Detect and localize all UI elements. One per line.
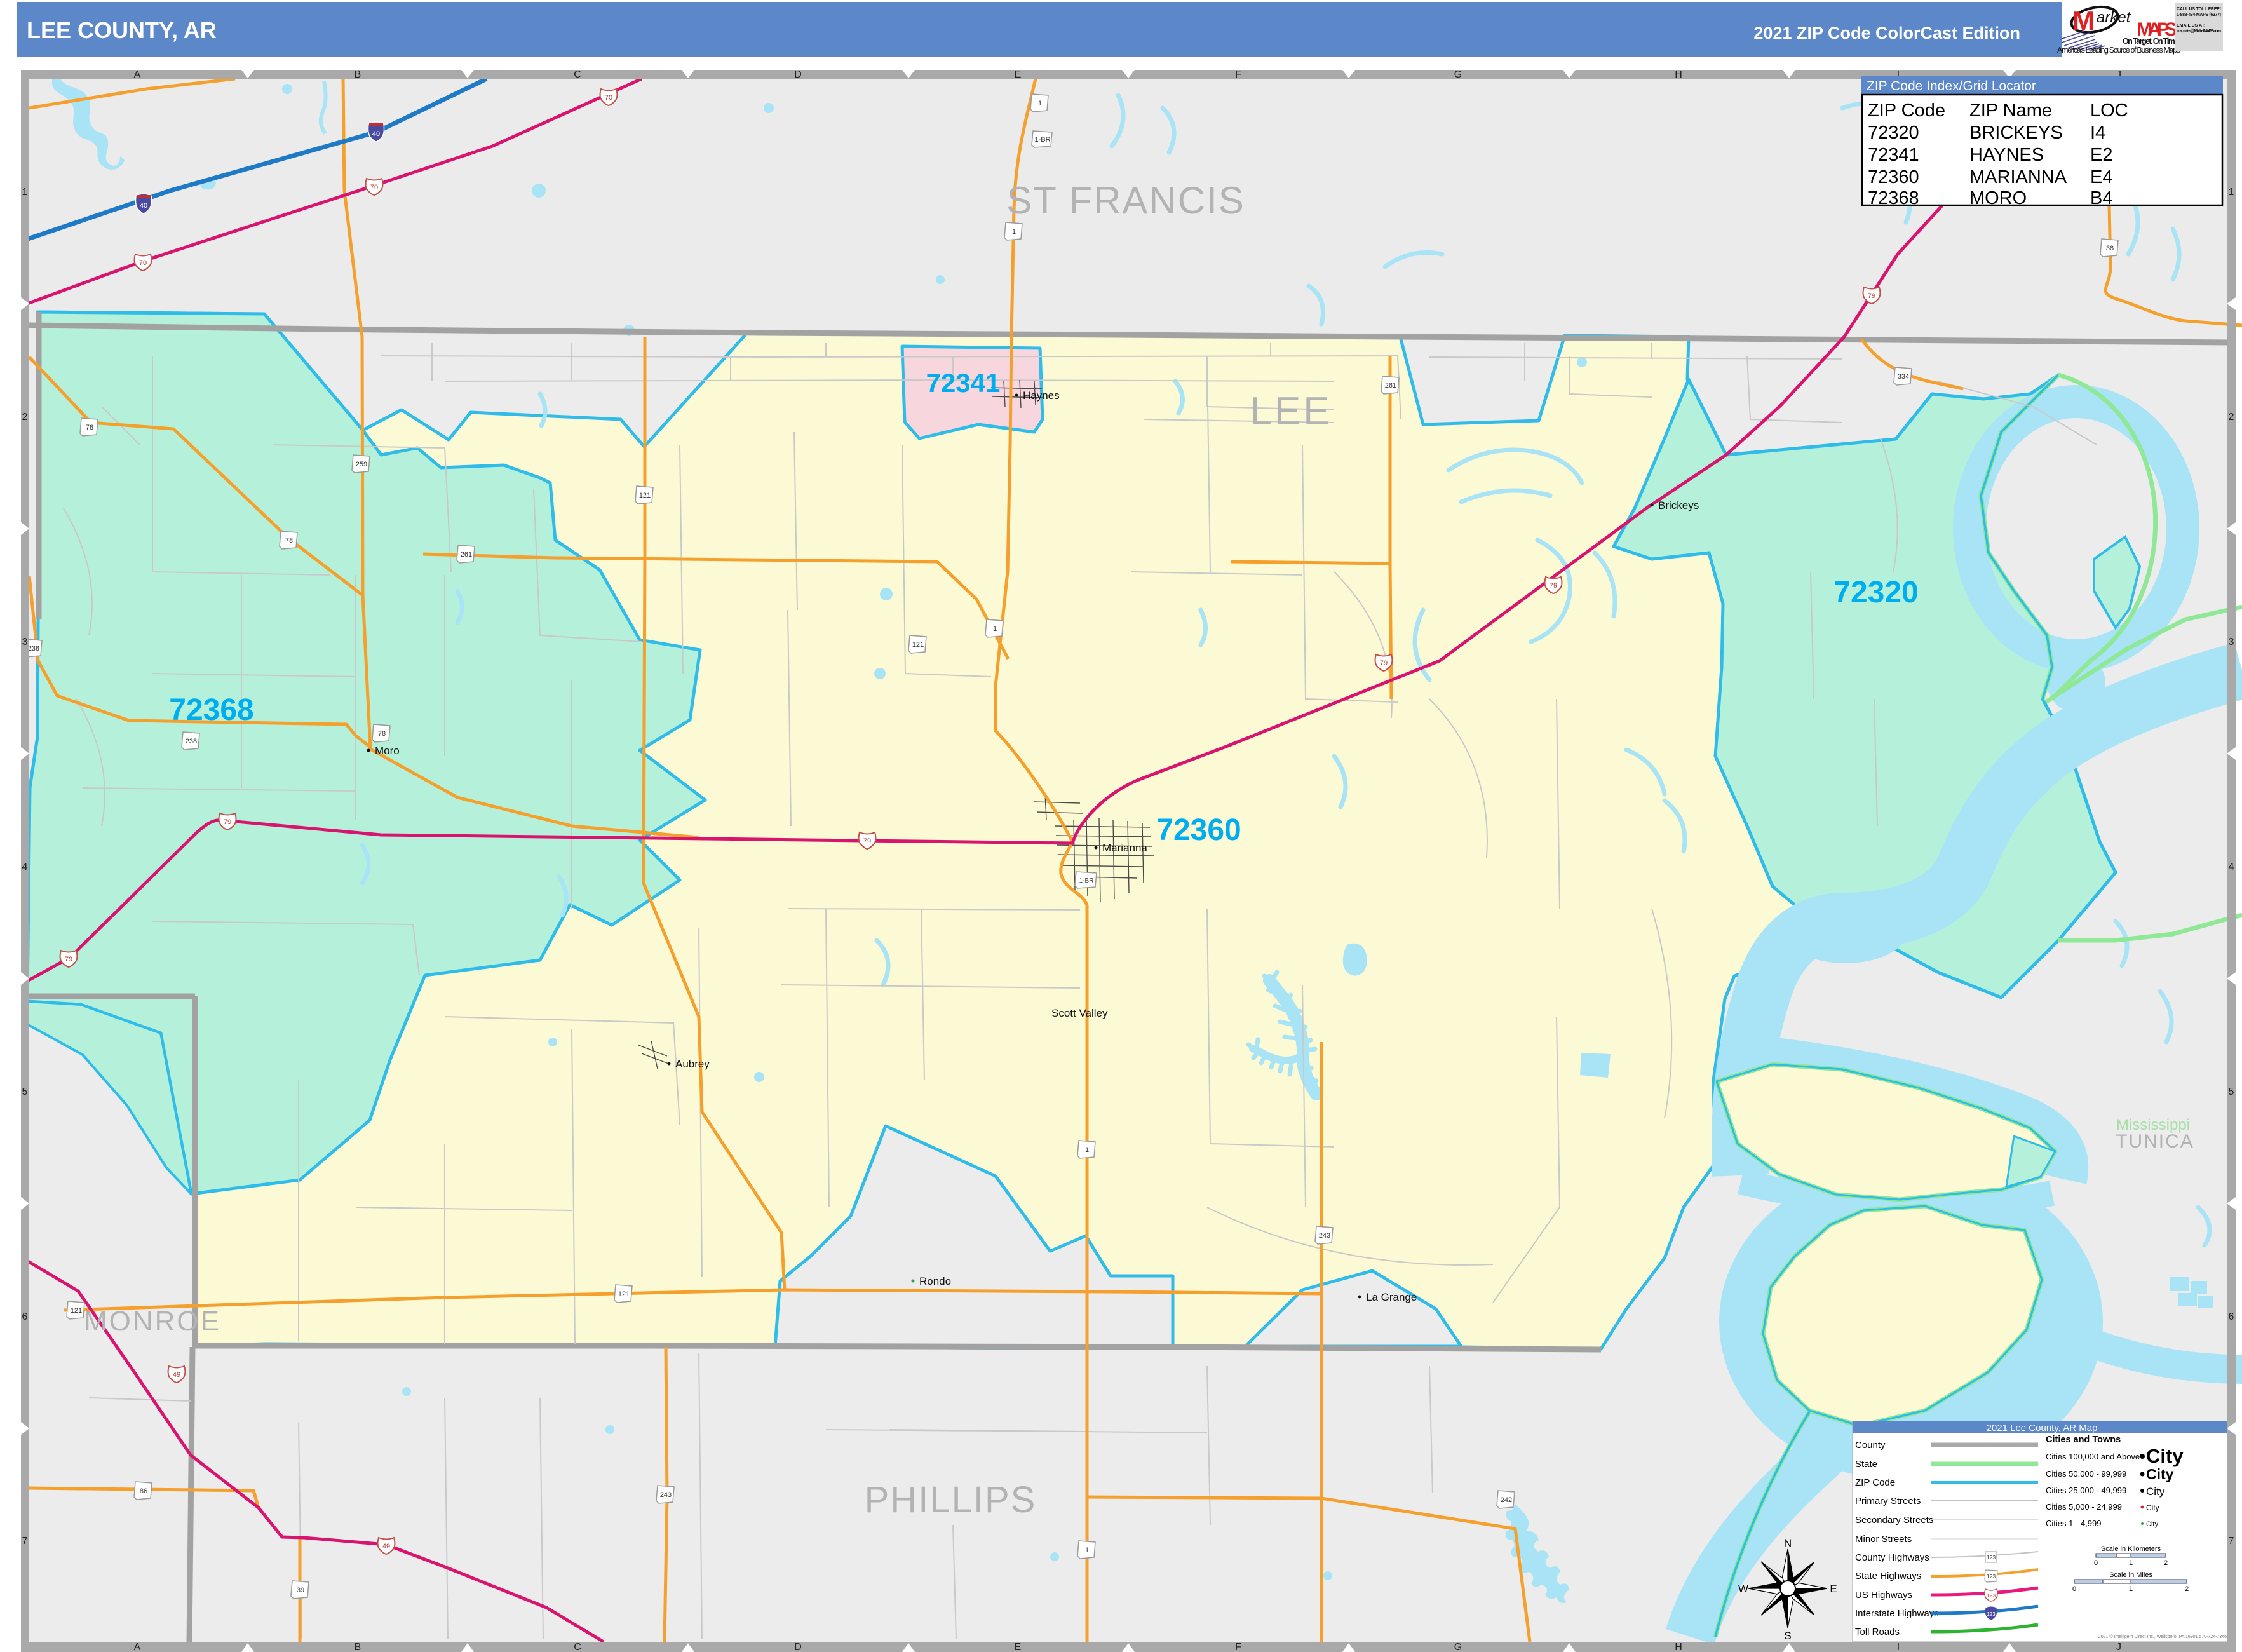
svg-text:259: 259 (356, 461, 367, 468)
svg-text:3: 3 (2229, 637, 2234, 647)
svg-text:4: 4 (2229, 862, 2234, 872)
svg-text:72320: 72320 (1868, 123, 1919, 143)
svg-text:B: B (355, 1642, 361, 1652)
svg-text:ZIP Code: ZIP Code (1868, 100, 1945, 121)
svg-text:LOC: LOC (2090, 100, 2128, 121)
svg-text:1: 1 (1012, 228, 1016, 236)
svg-text:Interstate Highways: Interstate Highways (1855, 1608, 1939, 1619)
svg-text:40: 40 (372, 130, 380, 138)
svg-text:78: 78 (378, 730, 386, 738)
svg-text:334: 334 (1898, 373, 1909, 381)
svg-text:72360: 72360 (1156, 813, 1241, 847)
svg-text:N: N (1784, 1537, 1792, 1549)
svg-text:121: 121 (71, 1307, 82, 1315)
svg-text:Cities 100,000 and Above: Cities 100,000 and Above (2046, 1452, 2140, 1461)
svg-text:A: A (134, 69, 141, 80)
svg-text:Scott Valley: Scott Valley (1051, 1007, 1108, 1019)
svg-text:38: 38 (2106, 245, 2114, 252)
svg-text:86: 86 (140, 1487, 147, 1495)
svg-text:243: 243 (660, 1491, 672, 1499)
svg-text:PHILLIPS: PHILLIPS (865, 1479, 1037, 1520)
svg-text:CALL US TOLL FREE!: CALL US TOLL FREE! (2177, 7, 2221, 11)
svg-text:78: 78 (86, 424, 93, 431)
svg-text:La Grange: La Grange (1366, 1291, 1417, 1303)
svg-text:70: 70 (139, 259, 147, 267)
svg-text:MORO: MORO (1969, 188, 2027, 208)
svg-text:242: 242 (1501, 1496, 1512, 1504)
svg-text:Moro: Moro (375, 745, 400, 757)
svg-text:39: 39 (297, 1587, 304, 1594)
svg-text:E: E (1015, 69, 1022, 80)
svg-text:Brickeys: Brickeys (1658, 499, 1699, 511)
svg-text:LEE: LEE (1250, 389, 1332, 433)
svg-text:B4: B4 (2090, 188, 2112, 208)
svg-text:123: 123 (1987, 1592, 1996, 1599)
svg-text:Rondo: Rondo (919, 1275, 951, 1287)
svg-text:County Highways: County Highways (1855, 1552, 1929, 1563)
svg-text:4: 4 (22, 862, 28, 872)
svg-text:72341: 72341 (1868, 145, 1919, 165)
svg-text:72341: 72341 (926, 368, 1001, 398)
svg-text:1: 1 (2129, 1585, 2133, 1593)
svg-text:Minor Streets: Minor Streets (1855, 1534, 1912, 1545)
svg-text:S: S (1784, 1630, 1791, 1642)
svg-text:C: C (574, 69, 581, 80)
svg-text:State Highways: State Highways (1855, 1571, 1921, 1581)
svg-text:121: 121 (912, 641, 924, 649)
svg-text:0: 0 (2094, 1559, 2098, 1567)
svg-text:6: 6 (2229, 1311, 2234, 1322)
svg-text:City: City (2146, 1486, 2165, 1498)
svg-text:C: C (574, 1642, 581, 1652)
svg-text:2021 ZIP Code ColorCast Editio: 2021 ZIP Code ColorCast Edition (1753, 24, 2020, 43)
svg-text:70: 70 (605, 94, 612, 102)
svg-text:238: 238 (28, 645, 39, 653)
svg-text:79: 79 (65, 956, 72, 963)
svg-text:6: 6 (22, 1311, 28, 1322)
svg-text:1: 1 (2229, 187, 2234, 198)
svg-text:1: 1 (22, 187, 28, 198)
svg-text:America's Leading Source of B: America's Leading Source of Business Map… (2057, 46, 2180, 55)
svg-text:I: I (1897, 1642, 1900, 1652)
svg-text:1: 1 (1038, 100, 1042, 107)
svg-text:Primary Streets: Primary Streets (1855, 1496, 1921, 1506)
svg-text:1: 1 (2129, 1559, 2133, 1567)
svg-text:W: W (1738, 1583, 1748, 1595)
svg-text:TUNICA: TUNICA (2116, 1131, 2194, 1152)
svg-text:MONROE: MONROE (84, 1306, 221, 1337)
svg-text:City: City (2146, 1466, 2174, 1482)
svg-text:72320: 72320 (1833, 576, 1918, 609)
svg-text:123: 123 (1987, 1611, 1996, 1617)
svg-text:79: 79 (1868, 292, 1875, 300)
svg-text:1: 1 (1085, 1146, 1089, 1154)
svg-text:72360: 72360 (1868, 167, 1919, 187)
svg-text:72368: 72368 (169, 693, 253, 727)
svg-text:123: 123 (1987, 1573, 1996, 1580)
svg-text:H: H (1675, 69, 1682, 80)
svg-text:G: G (1454, 69, 1462, 80)
svg-text:mapsales@MarketMAPS.com: mapsales@MarketMAPS.com (2177, 29, 2221, 34)
svg-text:Cities 25,000 - 49,999: Cities 25,000 - 49,999 (2046, 1486, 2126, 1495)
svg-text:Haynes: Haynes (1023, 389, 1060, 402)
svg-text:7: 7 (2229, 1536, 2234, 1547)
svg-text:US Highways: US Highways (1855, 1590, 1912, 1601)
svg-text:2021 Lee County, AR Map: 2021 Lee County, AR Map (1987, 1423, 2098, 1433)
svg-text:79: 79 (224, 818, 231, 826)
svg-text:BRICKEYS: BRICKEYS (1969, 123, 2063, 143)
svg-text:Scale in Miles: Scale in Miles (2109, 1571, 2152, 1579)
svg-text:2: 2 (22, 412, 28, 423)
svg-text:E2: E2 (2090, 145, 2112, 165)
svg-text:Secondary Streets: Secondary Streets (1855, 1515, 1933, 1526)
svg-text:2021 © Intelligent Direct Inc.: 2021 © Intelligent Direct Inc., Wellsbor… (2098, 1634, 2227, 1639)
svg-text:1: 1 (993, 625, 997, 633)
svg-text:243: 243 (1319, 1232, 1330, 1240)
svg-text:79: 79 (1550, 582, 1557, 590)
svg-text:123: 123 (1987, 1554, 1996, 1561)
svg-text:County: County (1855, 1440, 1886, 1451)
svg-text:1-BR: 1-BR (1034, 136, 1050, 144)
svg-text:A: A (134, 1642, 141, 1652)
svg-text:49: 49 (173, 1371, 180, 1379)
svg-text:0: 0 (2072, 1585, 2076, 1593)
svg-text:Mississippi: Mississippi (2116, 1116, 2190, 1134)
svg-text:78: 78 (285, 537, 293, 545)
svg-text:1: 1 (1085, 1547, 1089, 1554)
svg-text:LEE COUNTY, AR: LEE COUNTY, AR (27, 17, 217, 43)
svg-text:121: 121 (618, 1290, 630, 1298)
svg-text:5: 5 (2229, 1087, 2234, 1097)
svg-text:F: F (1235, 69, 1241, 80)
svg-text:79: 79 (863, 837, 871, 845)
svg-text:City: City (2146, 1445, 2184, 1467)
svg-text:70: 70 (370, 184, 378, 191)
svg-text:D: D (794, 1642, 802, 1652)
svg-text:Toll Roads: Toll Roads (1855, 1627, 1900, 1637)
svg-text:7: 7 (22, 1536, 28, 1547)
svg-text:5: 5 (22, 1087, 28, 1097)
svg-text:ZIP Name: ZIP Name (1969, 100, 2052, 121)
svg-text:F: F (1235, 1642, 1241, 1652)
svg-text:E: E (1015, 1642, 1022, 1652)
svg-text:State: State (1855, 1459, 1877, 1470)
svg-text:E: E (1830, 1583, 1837, 1595)
svg-text:2: 2 (2229, 412, 2234, 423)
svg-text:EMAIL US AT:: EMAIL US AT: (2177, 24, 2205, 28)
svg-text:arket: arket (2097, 9, 2131, 26)
svg-text:MARIANNA: MARIANNA (1969, 167, 2067, 187)
svg-text:City: City (2146, 1503, 2159, 1512)
svg-text:2: 2 (2164, 1559, 2168, 1567)
svg-text:J: J (2116, 1642, 2121, 1652)
svg-text:3: 3 (22, 637, 28, 647)
svg-text:261: 261 (461, 551, 472, 559)
svg-text:Aubrey: Aubrey (675, 1058, 710, 1070)
svg-text:261: 261 (1385, 382, 1396, 389)
svg-text:H: H (1675, 1642, 1682, 1652)
svg-text:G: G (1454, 1642, 1462, 1652)
svg-text:ST FRANCIS: ST FRANCIS (1006, 179, 1245, 222)
svg-text:Cities 1 - 4,999: Cities 1 - 4,999 (2046, 1519, 2101, 1528)
svg-text:1-888-434-MAPS (6277): 1-888-434-MAPS (6277) (2177, 13, 2221, 17)
svg-text:D: D (794, 69, 802, 80)
svg-text:B: B (355, 69, 361, 80)
svg-text:Cities 5,000 - 24,999: Cities 5,000 - 24,999 (2046, 1502, 2122, 1512)
svg-text:238: 238 (186, 738, 197, 745)
svg-text:On Target. On Time.: On Target. On Time. (2123, 37, 2180, 46)
svg-text:79: 79 (1380, 660, 1388, 667)
svg-text:I4: I4 (2090, 123, 2105, 143)
svg-text:72368: 72368 (1868, 188, 1919, 208)
svg-text:Cities and Towns: Cities and Towns (2046, 1435, 2121, 1445)
svg-text:2: 2 (2185, 1585, 2189, 1593)
svg-text:Marianna: Marianna (1102, 842, 1147, 854)
svg-text:Scale in Kilometers: Scale in Kilometers (2101, 1545, 2161, 1553)
svg-text:49: 49 (382, 1543, 390, 1550)
svg-text:ZIP Code Index/Grid Locator: ZIP Code Index/Grid Locator (1867, 79, 2036, 93)
svg-text:Cities 50,000 - 99,999: Cities 50,000 - 99,999 (2046, 1469, 2126, 1479)
svg-text:HAYNES: HAYNES (1969, 145, 2044, 165)
svg-text:1-BR: 1-BR (1079, 877, 1094, 884)
svg-text:ZIP Code: ZIP Code (1855, 1477, 1895, 1488)
svg-text:City: City (2146, 1520, 2158, 1528)
svg-text:40: 40 (140, 202, 147, 210)
svg-text:E4: E4 (2090, 167, 2112, 187)
svg-text:121: 121 (639, 492, 651, 499)
